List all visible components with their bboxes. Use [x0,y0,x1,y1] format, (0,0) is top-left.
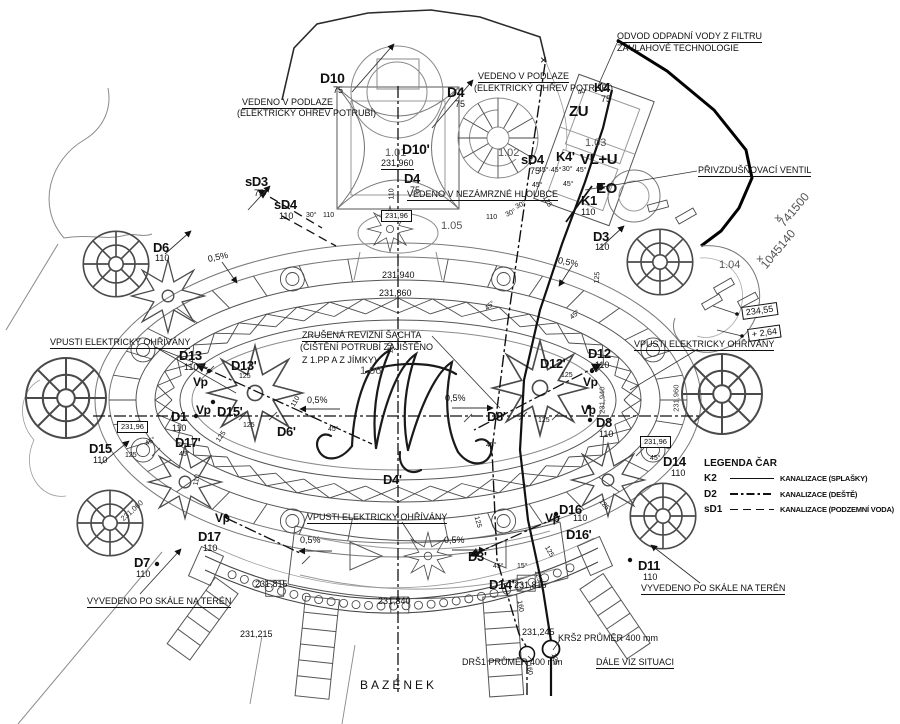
elev-231245: 231,245 [522,628,555,637]
angle-30-r1: 30° [505,208,518,219]
slope-mid-right: 0,5% [445,394,466,403]
elev-231840: 231,840 [378,597,411,606]
coord-x: 741500 [776,190,811,228]
angle-45-d8r: 45° [650,455,661,462]
label-d17-dn: 110 [203,544,217,553]
elev-231960-vert: 231,960 [672,385,680,412]
dim-125-d: 125 [538,417,550,424]
dim-110-rot-d17: 110 [193,474,202,486]
angle-45-mid: 45° [484,300,497,312]
label-sd4-left-dn: 110 [279,212,293,221]
label-d13-dn: 110 [184,363,198,372]
note-odvod-2: ZÁVLAHOVÉ TECHNOLOGIE [617,44,739,53]
label-d16p: D16' [566,528,591,541]
note-zrusena-3: Z 1.PP A Z JÍMKY) [302,356,377,365]
angle-top-e: 45° [563,181,574,188]
label-k4: K4 [594,81,610,94]
angle-top-a: 45°·45° [538,167,562,174]
label-d14r-dn: 110 [671,469,685,478]
label-d16-dn: 110 [573,514,587,523]
label-d12: D12 [588,347,611,360]
label-vp-4: Vp [581,404,596,416]
angle-15-d14: 15° [517,563,528,570]
label-vlu: VL+U [580,152,617,167]
cad-site-plan-page: ODVOD ODPADNÍ VODY Z FILTRUZÁVLAHOVÉ TEC… [0,0,900,724]
elev-231060: 231,060 [119,499,144,523]
elev-23196-box-left: 231,96 [117,421,148,433]
angle-top-c: 45° [576,167,587,174]
angle-30-r2: 30° [515,200,528,211]
dim-40: 40 [577,88,587,97]
note-vedeno-podlaze-l2: (ELEKTRICKÝ OHŘEV POTRUBÍ) [237,109,376,118]
note-vyvedeno-right: VYVEDENO PO SKÁLE NA TERÉN [641,584,785,595]
label-d14r: D14 [663,455,686,468]
legend-solid-line-sample [730,478,774,479]
elev-231940: 231,940 [382,271,415,280]
note-vyvedeno-left: VYVEDENO PO SKÁLE NA TERÉN [87,597,231,608]
note-nezamrzne: VEDENO V NEZÁMRZNÉ HLOUBCE [407,190,558,201]
note-vpusti-bottom: VPUSTI ELEKTRICKY OHŘÍVÁNY [307,513,447,524]
legend-title: LEGENDA ČAR [704,458,894,469]
slope-bot-left: 0,5% [300,536,321,545]
label-sd3-dn: 75 [254,189,264,198]
label-d14p: D14' [489,578,514,591]
dim-125-rot-d16b: 125 [543,545,555,559]
room-105: 1.05 [441,221,462,232]
label-d15-dn: 110 [93,456,107,465]
legend-dashdot-line-sample [730,493,774,495]
label-d1: D1 [171,410,187,423]
elev-231860: 231,860 [379,289,412,298]
dim-110-rot-left: 110 [290,395,302,408]
note-drs1: DRŠ1 PRŮMĚR 400 mm [462,658,563,667]
label-zu: ZU [569,104,588,119]
line-legend: LEGENDA ČAR K2 KANALIZACE (SPLAŠKY) D2 K… [704,458,894,520]
legend-code-d2: D2 [704,489,730,500]
note-zrusena-2: (ČIŠTĚNÍ POTRUBÍ ZAJIŠTĚNO [300,343,433,352]
elev-231940-vert: 231,940 [598,387,606,414]
elev-23196-box-right: 231,96 [640,436,671,448]
angle-45-d15: 45° [144,436,157,447]
legend-row-d2: D2 KANALIZACE (DEŠTĚ) [704,489,894,500]
coord-y: 1045140 [758,227,797,271]
dim-160-rot: 160 [516,600,525,613]
label-d11-dn: 110 [643,573,657,582]
label-d6-dn: 110 [155,254,169,263]
room-106: 1.06 [360,366,381,377]
elev-231215: 231,215 [240,630,273,639]
legend-dashed-line-sample [730,509,774,511]
label-d3-dn: 110 [595,243,609,252]
angle-45-d17: 45° [179,451,190,458]
slope-nw: 0,5% [207,251,229,264]
elev-23455-box: 234,55 [741,302,778,320]
label-d11: D11 [638,559,660,572]
elev-23196-box-top: 231,96 [381,210,412,222]
note-zrusena-1: ZRUŠENÁ REVIZNÍ ŠACHTA [302,331,421,342]
label-d4-mid: D4 [404,172,420,185]
label-vp-3: Vp [196,404,211,416]
elev-231815-l: 231,815 [255,580,288,589]
label-vp-6: Vp [215,512,230,524]
label-d8p: D8' [487,410,506,423]
legend-code-k2: K2 [704,473,730,484]
slope-mid-left: 0,5% [307,396,328,405]
legend-row-sd1: sD1 KANALIZACE (PODZEMNÍ VODA) [704,504,894,515]
slope-ne: 0,5% [557,256,579,269]
dim-125-rot-d16: 125 [597,498,610,511]
legend-row-k2: K2 KANALIZACE (SPLAŠKY) [704,473,894,484]
room-103: 1.03 [585,138,606,149]
angle-45-d14: 45° [493,563,504,570]
note-vpusti-left: VPUSTI ELEKTRICKY OHŘÍVÁNY [50,338,190,349]
angle-top-d: 45° [532,182,543,189]
dim-110-a: 110 [323,212,334,219]
label-d1-dn: 110 [172,424,186,433]
angle-top-b: 30° [562,166,573,173]
label-k4-dn: 75 [601,95,611,104]
legend-code-sd1: sD1 [704,504,730,515]
coord-cross-2: + [756,252,764,265]
label-d10p: D10' [402,142,429,156]
label-d13: D13 [179,349,202,362]
dim-125-e: 125 [125,452,137,459]
dim-125-rot-e: 125 [473,516,483,529]
room-104: 1.04 [719,260,740,271]
label-sd4-mid: sD4 [521,153,544,166]
label-d17p: D17' [175,436,200,449]
coord-cross-1: + [774,211,782,224]
label-d8-dn: 110 [599,430,613,439]
dim-125-rot-d13: 125 [215,430,227,444]
angle-45-d8l: 45° [486,442,497,449]
label-k4p: K4' [556,150,575,163]
title-bazenek: BAZÉNEK [360,679,437,691]
label-vp-5: Vp [545,512,560,524]
label-d4-top: D4 [447,85,464,99]
label-d10-dn: 75 [333,86,343,95]
label-sd3: sD3 [245,175,268,188]
dim-110-center-rot: 110 [388,342,395,353]
label-d6p: D6' [277,425,296,438]
legend-label-k2: KANALIZACE (SPLAŠKY) [780,474,867,483]
label-d7-dn: 110 [136,570,150,579]
note-odvod-1: ODVOD ODPADNÍ VODY Z FILTRU [617,32,762,43]
label-d10: D10 [320,71,344,85]
slope-bot-right: 0,5% [444,536,465,545]
elev-231815-c: 231,815 [514,581,547,590]
label-d4p: D4' [383,473,402,486]
label-d12-dn: 110 [595,361,609,370]
elev-231960-top: 231,960 [381,159,414,170]
note-vedeno-podlaze-r1: VEDENO V PODLAZE [478,72,569,83]
dim-110-d4: 110 [389,188,396,199]
angle-45-a: 45° [328,426,339,433]
note-privzdus: PŘIVZDUŠŇOVACÍ VENTIL [698,166,811,177]
label-d4-top-dn: 75 [455,100,465,109]
label-d15p: D15' [217,405,242,418]
label-vp-2: Vp [583,376,598,388]
legend-label-d2: KANALIZACE (DEŠTĚ) [780,490,857,499]
annotation-labels-layer: ODVOD ODPADNÍ VODY Z FILTRUZÁVLAHOVÉ TEC… [0,0,900,724]
room-102: 1.02 [498,148,519,159]
angle-45-k2: 45° [569,309,582,321]
angle-30-left: 30° [306,212,317,219]
dim-125-rot-d3: 125 [594,272,602,284]
label-d7: D7 [134,556,150,569]
label-sd4-left: sD4 [274,198,297,211]
label-d15: D15 [89,442,112,455]
cross-mark: × [540,54,547,66]
label-d12p: D12' [540,357,565,370]
note-krs2: KRŠ2 PRŮMĚR 400 mm [558,634,658,643]
label-k1-dn: 110 [581,208,595,217]
label-d17: D17 [198,530,221,543]
dim-125-c: 125 [243,422,255,429]
legend-label-sd1: KANALIZACE (PODZEMNÍ VODA) [780,505,894,514]
label-vp-1: Vp [193,376,208,388]
label-d8: D8 [596,416,612,429]
dim-110-b: 110 [486,214,497,221]
label-eo: EO [596,181,617,196]
note-vedeno-podlaze-r2: (ELEKTRICKÝ OHŘEV POTRUBÍ) [474,84,613,93]
note-vpusti-right: VPUSTI ELEKTRICKY OHŘÍVÁNY [634,340,774,351]
dim-125-b: 125 [561,372,573,379]
dim-125-a: 125 [239,373,251,380]
label-d13p: D13' [231,359,256,372]
label-d3p: D3' [468,550,487,563]
label-k1: K1 [581,194,597,207]
note-dale: DÁLE VIZ SITUACI [596,658,674,669]
